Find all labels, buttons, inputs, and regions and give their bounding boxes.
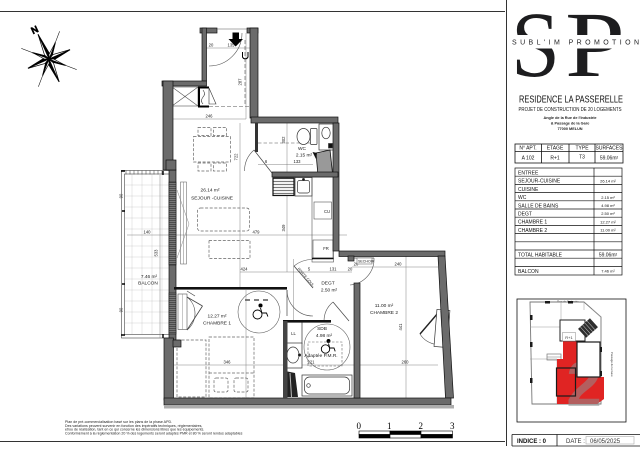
svg-text:BALCON: BALCON — [518, 269, 539, 275]
svg-text:4.98 m²: 4.98 m² — [316, 333, 333, 339]
svg-text:260: 260 — [402, 360, 410, 365]
svg-text:SEJOUR -CUISINE: SEJOUR -CUISINE — [191, 196, 233, 202]
svg-text:INDICE : 0: INDICE : 0 — [517, 439, 547, 445]
svg-text:246: 246 — [206, 114, 214, 119]
svg-text:ENTREE: ENTREE — [518, 171, 539, 177]
svg-text:26.14 m²: 26.14 m² — [201, 188, 220, 194]
svg-text:11.00 m²: 11.00 m² — [600, 228, 616, 233]
svg-text:26.14 m²: 26.14 m² — [600, 178, 616, 183]
svg-text:DEGT: DEGT — [321, 281, 334, 287]
svg-text:133: 133 — [294, 159, 302, 164]
svg-text:WC: WC — [298, 146, 307, 152]
svg-text:287: 287 — [238, 78, 243, 86]
svg-text:12.27 m²: 12.27 m² — [600, 219, 616, 224]
svg-text:06/05/2025: 06/05/2025 — [590, 439, 621, 445]
svg-text:LL: LL — [291, 331, 296, 336]
svg-text:SDB: SDB — [317, 326, 327, 332]
svg-text:240: 240 — [395, 262, 403, 267]
svg-text:11.00 m²: 11.00 m² — [375, 303, 394, 309]
svg-text:SALLE DE BAINS: SALLE DE BAINS — [518, 203, 559, 209]
svg-text:SURFACES: SURFACES — [596, 146, 624, 152]
svg-text:7.46 m²: 7.46 m² — [601, 269, 615, 274]
svg-text:59.06m²: 59.06m² — [599, 252, 618, 258]
svg-text:Passage de la Gare: Passage de la Gare — [610, 352, 614, 377]
svg-text:2.15 m²: 2.15 m² — [601, 195, 615, 200]
svg-text:7.46 m²: 7.46 m² — [141, 274, 158, 280]
svg-text:2.15 m²: 2.15 m² — [296, 153, 313, 159]
svg-text:349: 349 — [281, 224, 286, 232]
svg-text:TYPE: TYPE — [575, 146, 589, 152]
svg-text:Angle de la Rue de l'Industrie: Angle de la Rue de l'Industrie — [543, 116, 596, 120]
svg-text:533: 533 — [154, 249, 159, 257]
svg-text:0: 0 — [357, 421, 362, 431]
svg-text:SEJOUR-CUISINE: SEJOUR-CUISINE — [518, 179, 561, 185]
svg-text:R+1: R+1 — [565, 335, 573, 340]
svg-text:77000 MELUN: 77000 MELUN — [557, 127, 582, 131]
svg-text:T3: T3 — [579, 155, 585, 161]
svg-text:CU: CU — [324, 209, 330, 214]
svg-text:346: 346 — [224, 360, 232, 365]
svg-text:90: 90 — [119, 307, 124, 312]
svg-text:131: 131 — [330, 267, 338, 272]
svg-text:CHAMBRE 1: CHAMBRE 1 — [518, 220, 547, 226]
svg-text:DEGT: DEGT — [518, 212, 532, 218]
svg-text:2: 2 — [419, 421, 424, 431]
svg-text:479: 479 — [253, 230, 261, 235]
svg-text:140: 140 — [144, 230, 152, 235]
svg-text:BALCON: BALCON — [138, 281, 158, 287]
svg-text:TOTAL HABITABLE: TOTAL HABITABLE — [518, 253, 563, 259]
svg-text:CUISINE: CUISINE — [518, 187, 539, 193]
svg-text:N° APT.: N° APT. — [519, 146, 536, 152]
svg-text:CHAMBRE 2: CHAMBRE 2 — [370, 310, 398, 316]
svg-text:59.06m²: 59.06m² — [600, 156, 619, 162]
svg-text:Adaptée P.M.R.: Adaptée P.M.R. — [304, 353, 337, 359]
svg-text:PROJET DE CONSTRUCTION DE 20 L: PROJET DE CONSTRUCTION DE 20 LOGEMENTS — [519, 107, 622, 113]
svg-text:RESIDENCE LA PASSERELLE: RESIDENCE LA PASSERELLE — [519, 95, 623, 106]
svg-text:SECHOIR: SECHOIR — [358, 260, 375, 264]
svg-text:2.50 m²: 2.50 m² — [321, 288, 338, 294]
svg-text:4.98 m²: 4.98 m² — [601, 203, 615, 208]
svg-text:FR: FR — [323, 246, 329, 251]
svg-text:1: 1 — [387, 421, 392, 431]
svg-text:90: 90 — [119, 193, 124, 198]
svg-text:CHAMBRE 1: CHAMBRE 1 — [203, 321, 231, 327]
svg-text:12.27 m²: 12.27 m² — [208, 314, 227, 320]
svg-text:CHAMBRE 2: CHAMBRE 2 — [518, 228, 547, 234]
svg-text:Conformément à la réglementati: Conformément à la réglementation 20 % de… — [65, 431, 243, 435]
svg-text:ETAGE: ETAGE — [547, 146, 564, 152]
svg-text:20: 20 — [209, 43, 214, 48]
svg-text:A 102: A 102 — [522, 156, 535, 162]
svg-text:20: 20 — [348, 267, 353, 272]
svg-text:302: 302 — [281, 136, 286, 144]
svg-text:722: 722 — [234, 153, 239, 161]
svg-text:DATE :: DATE : — [566, 439, 585, 445]
svg-text:WC: WC — [518, 195, 527, 201]
svg-text:R+1: R+1 — [550, 156, 560, 162]
svg-text:441: 441 — [398, 323, 403, 331]
svg-text:424: 424 — [241, 267, 249, 272]
svg-text:3: 3 — [450, 421, 455, 431]
svg-text:2.50 m²: 2.50 m² — [601, 211, 615, 216]
svg-text:& Passage de la Gare: & Passage de la Gare — [551, 122, 590, 126]
